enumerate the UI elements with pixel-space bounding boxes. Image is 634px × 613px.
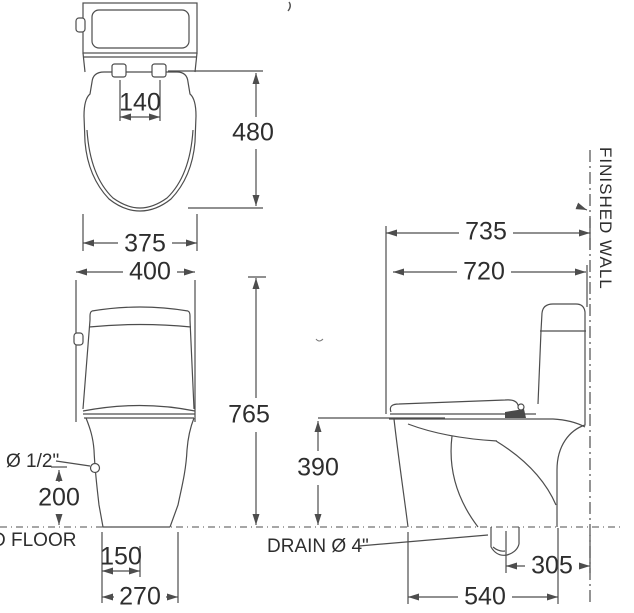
technical-drawing: 140 480 375 400 765 Ø 1/2" 200 D FLOOR 1… — [0, 0, 634, 613]
overlay-linework — [0, 0, 634, 613]
